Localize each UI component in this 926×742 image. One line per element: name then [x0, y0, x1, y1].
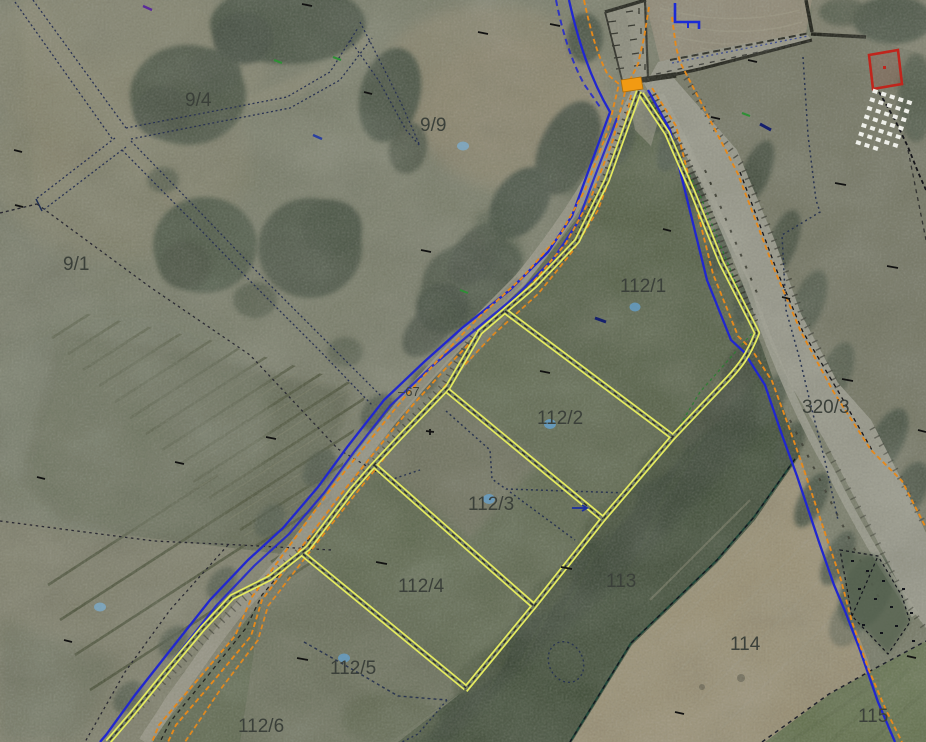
svg-text:9/4: 9/4 [185, 90, 212, 111]
svg-text:112/2: 112/2 [537, 408, 583, 429]
svg-text:112/3: 112/3 [468, 494, 514, 515]
svg-text:112/4: 112/4 [398, 576, 445, 597]
svg-text:112/5: 112/5 [330, 658, 376, 679]
svg-text:112/1: 112/1 [620, 276, 666, 297]
svg-text:–67: –67 [398, 384, 420, 399]
svg-text:320/3: 320/3 [802, 397, 850, 418]
svg-text:113: 113 [606, 571, 636, 592]
svg-text:9/9: 9/9 [420, 115, 446, 136]
svg-text:112/6: 112/6 [238, 716, 284, 737]
svg-text:115: 115 [858, 706, 888, 727]
svg-text:114: 114 [730, 634, 761, 655]
svg-text:9/1: 9/1 [63, 254, 89, 275]
